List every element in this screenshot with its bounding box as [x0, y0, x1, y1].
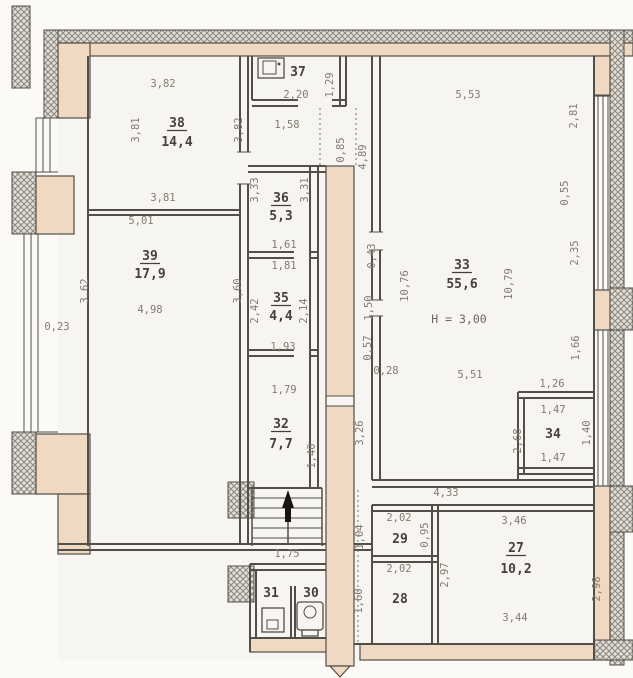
dimension-label: 3,82	[150, 78, 175, 90]
dimension-label: 2,02	[386, 563, 411, 575]
room-number-label: 36	[273, 191, 289, 206]
dimension-label: 0,55	[559, 180, 571, 205]
dimension-label: 0,57	[362, 335, 374, 360]
room-area-label: 7,7	[269, 437, 292, 452]
dimension-label: 5,01	[128, 215, 153, 227]
dimension-label: 3,31	[299, 177, 311, 202]
dimension-label: 1,79	[271, 384, 296, 396]
dimension-label: 3,81	[150, 192, 175, 204]
room-number-label: 34	[545, 427, 561, 442]
dimension-label: 2,35	[569, 240, 581, 265]
dimension-label: 1,58	[274, 119, 299, 131]
dimension-label: 4,33	[433, 487, 458, 499]
dimension-label: 3,60	[232, 278, 244, 303]
dimension-label: 1,60	[353, 588, 365, 613]
room-area-label: 55,6	[446, 277, 477, 292]
dimension-label: 2,20	[283, 89, 308, 101]
dimension-label: 0,43	[366, 243, 378, 268]
room-area-label: 5,3	[269, 209, 292, 224]
dimension-label: 10,76	[399, 270, 411, 302]
dimension-label: 5,53	[455, 89, 480, 101]
room-number-label: 35	[273, 291, 289, 306]
room-number-label: 31	[263, 586, 279, 601]
dimension-label: 1,66	[570, 335, 582, 360]
dimension-label: 1,81	[271, 260, 296, 272]
dimension-label: 1,04	[354, 524, 366, 549]
dimension-label: 1,75	[274, 548, 299, 560]
dimension-label: 2,02	[386, 512, 411, 524]
dimension-label: 3,26	[354, 420, 366, 445]
room-number-label: 38	[169, 116, 185, 131]
dimension-label: 1,61	[271, 239, 296, 251]
room-area-label: 4,4	[269, 309, 293, 324]
dimension-label: 3,82	[233, 117, 245, 142]
dimension-label: 3,33	[249, 177, 261, 202]
dimension-label: 1,26	[539, 378, 564, 390]
room-number-label: 33	[454, 258, 470, 273]
room-number-label: 37	[290, 65, 306, 80]
dimension-label: 2,14	[298, 298, 310, 323]
room-area-label: 14,4	[161, 135, 192, 150]
dimension-label: 2,97	[439, 562, 451, 587]
dimension-label: 1,29	[324, 72, 336, 97]
dimension-label: 2,81	[568, 103, 580, 128]
dimension-label: 10,79	[503, 268, 515, 300]
room-number-label: 29	[392, 532, 408, 547]
dimension-label: 2,68	[512, 428, 524, 453]
dimension-label: 0,23	[44, 321, 69, 333]
dimension-label: 0,85	[335, 137, 347, 162]
ceiling-height-label: Н = 3,00	[431, 312, 486, 326]
dimension-label: 0,28	[373, 365, 398, 377]
floor-plan: 3,82372,201,295,531,580,854,893,813,8238…	[0, 0, 633, 678]
room-number-label: 30	[303, 586, 319, 601]
room-number-label: 32	[273, 417, 289, 432]
dimension-label: 3,81	[130, 117, 142, 142]
dimension-label: 2,42	[249, 298, 261, 323]
shaft	[326, 166, 354, 677]
dimension-label: 3,62	[79, 278, 91, 303]
dimension-label: 1,50	[363, 295, 375, 320]
room-number-label: 28	[392, 592, 408, 607]
room-number-label: 27	[508, 541, 524, 556]
room-area-label: 17,9	[134, 267, 165, 282]
dimension-label: 0,95	[419, 522, 431, 547]
dimension-label: 2,98	[591, 576, 603, 601]
room-number-label: 39	[142, 249, 158, 264]
floor-plan-drawing: 3,82372,201,295,531,580,854,893,813,8238…	[0, 0, 633, 678]
dimension-label: 5,51	[457, 369, 482, 381]
dimension-label: 3,46	[501, 515, 526, 527]
dimension-label: 1,93	[270, 341, 295, 353]
room-area-label: 10,2	[500, 562, 531, 577]
dimension-label: 1,47	[540, 404, 565, 416]
dimension-label: 1,40	[581, 420, 593, 445]
dimension-label: 4,89	[357, 144, 369, 169]
dimension-label: 4,98	[137, 304, 162, 316]
dimension-label: 3,44	[502, 612, 527, 624]
dimension-label: 1,40	[306, 443, 318, 468]
dimension-label: 1,47	[540, 452, 565, 464]
